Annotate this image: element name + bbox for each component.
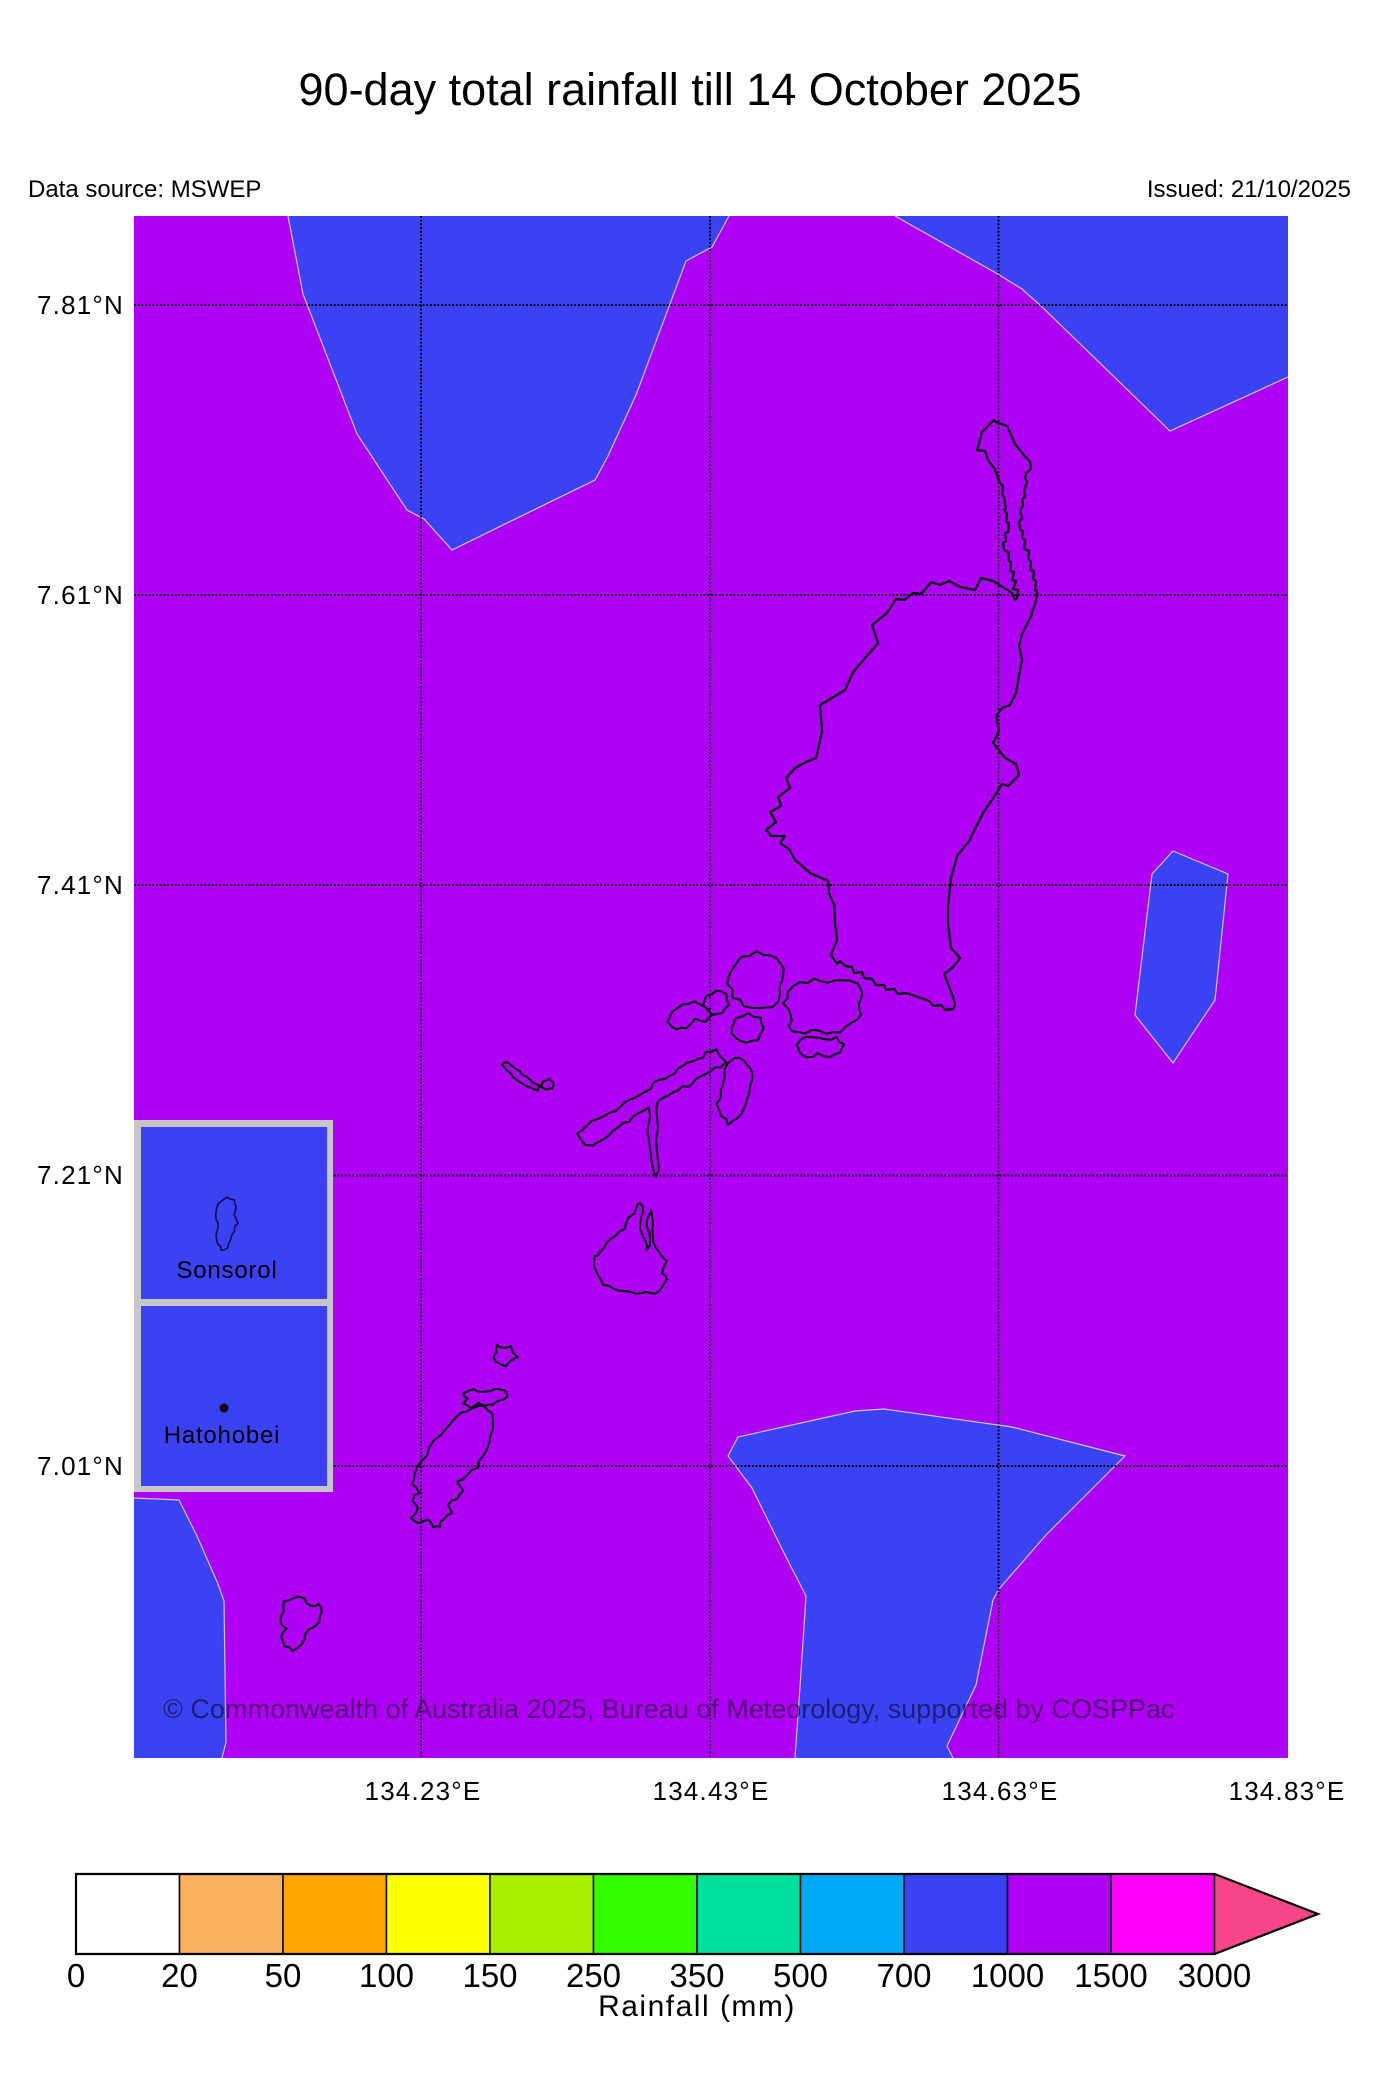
- svg-text:250: 250: [566, 1957, 621, 1994]
- svg-text:Sonsorol: Sonsorol: [176, 1257, 277, 1284]
- svg-text:© Commonwealth of Australia 20: © Commonwealth of Australia 2025, Bureau…: [163, 1694, 1174, 1724]
- svg-text:350: 350: [669, 1957, 724, 1994]
- svg-text:134.23°E: 134.23°E: [365, 1776, 482, 1806]
- svg-text:7.01°N: 7.01°N: [37, 1451, 124, 1481]
- svg-text:1500: 1500: [1074, 1957, 1147, 1994]
- svg-text:Data source: MSWEP: Data source: MSWEP: [28, 176, 261, 203]
- svg-text:7.61°N: 7.61°N: [37, 580, 124, 610]
- svg-text:700: 700: [876, 1957, 931, 1994]
- svg-text:150: 150: [462, 1957, 517, 1994]
- svg-text:1000: 1000: [971, 1957, 1044, 1994]
- svg-text:7.21°N: 7.21°N: [37, 1160, 124, 1190]
- svg-text:7.41°N: 7.41°N: [37, 870, 124, 900]
- svg-text:3000: 3000: [1178, 1957, 1251, 1994]
- svg-text:500: 500: [773, 1957, 828, 1994]
- svg-text:7.81°N: 7.81°N: [37, 290, 124, 320]
- svg-text:20: 20: [161, 1957, 198, 1994]
- svg-text:134.83°E: 134.83°E: [1229, 1776, 1346, 1806]
- svg-text:Hatohobei: Hatohobei: [164, 1422, 281, 1449]
- svg-text:100: 100: [359, 1957, 414, 1994]
- svg-text:134.43°E: 134.43°E: [653, 1776, 770, 1806]
- svg-text:Issued: 21/10/2025: Issued: 21/10/2025: [1147, 176, 1351, 203]
- svg-text:90-day total rainfall till 14: 90-day total rainfall till 14 October 20…: [299, 64, 1082, 115]
- svg-text:0: 0: [67, 1957, 85, 1994]
- svg-text:Rainfall (mm): Rainfall (mm): [598, 1990, 796, 2023]
- svg-text:134.63°E: 134.63°E: [942, 1776, 1059, 1806]
- svg-text:50: 50: [265, 1957, 302, 1994]
